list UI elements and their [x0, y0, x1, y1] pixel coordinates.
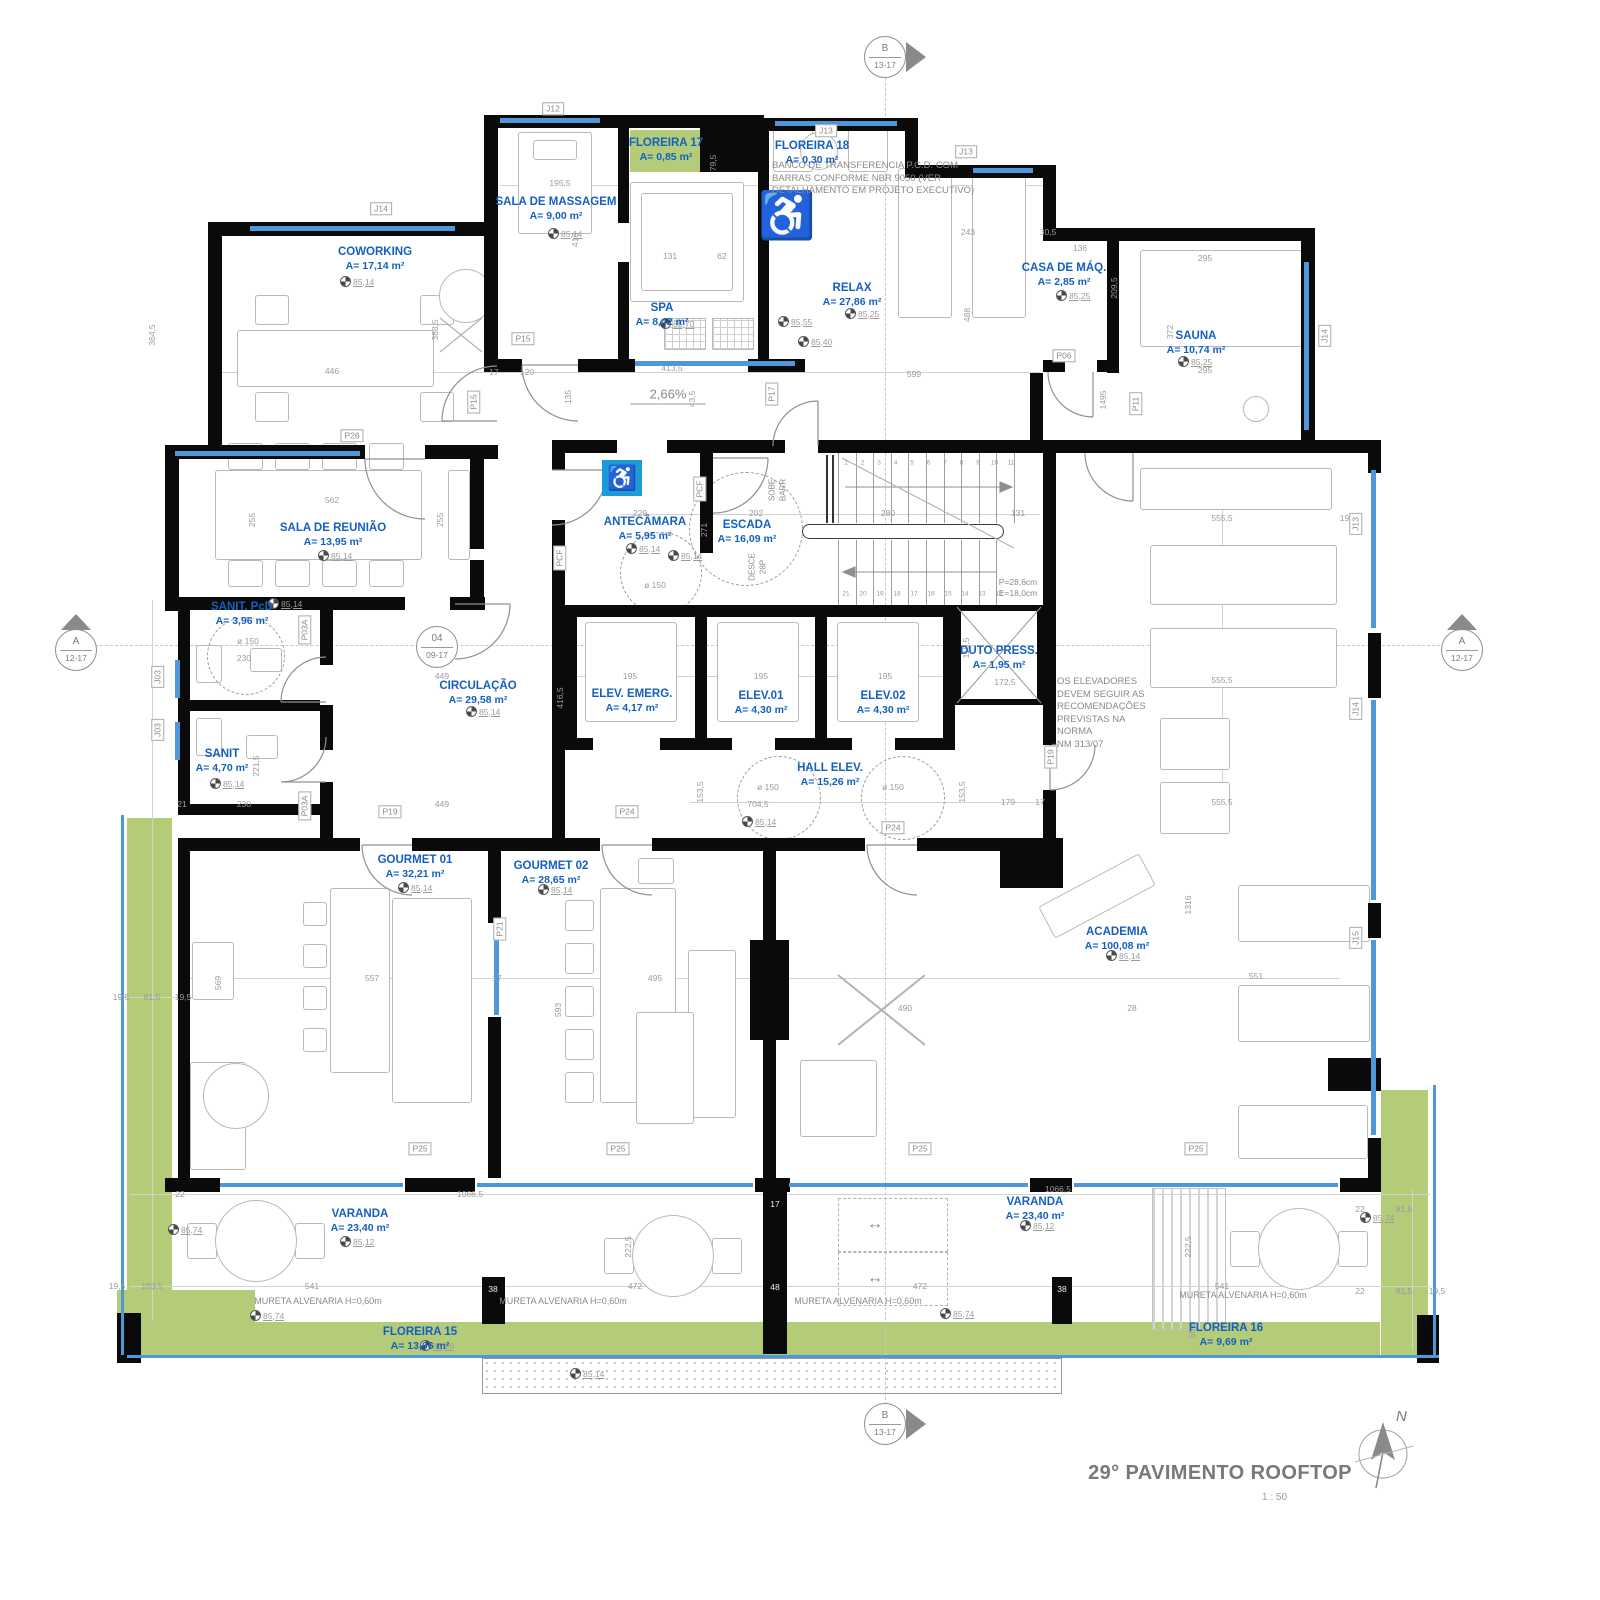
- dimension-label: 103,5: [141, 1281, 162, 1291]
- dimension-label: 22: [1355, 1286, 1364, 1296]
- dimension-label: 1066,5: [1045, 1184, 1071, 1194]
- dimension-label: 1066,5: [457, 1189, 483, 1199]
- opening-tag-p17: P17: [765, 382, 778, 405]
- dimension-label: 19,5: [1429, 1286, 1446, 1296]
- elevation-benchmark: 85,40: [798, 336, 832, 347]
- room-label-floreira-15: FLOREIRA 15A= 13,66 m²: [383, 1326, 457, 1352]
- accessible-icon: ♿: [602, 460, 642, 496]
- dimension-label: 413,5: [661, 363, 682, 373]
- opening-tag-j13: J13: [815, 124, 837, 137]
- dimension-label: 388,5: [430, 319, 440, 340]
- opening-tag-p15: P15: [511, 332, 534, 345]
- dimension-label: 1495: [1098, 391, 1108, 410]
- dimension-label: 222,5: [623, 1236, 633, 1257]
- opening-tag-j12: J12: [542, 102, 564, 115]
- elevation-benchmark: 85,14: [742, 816, 776, 827]
- room-label-floreira-16: FLOREIRA 16A= 9,69 m²: [1189, 1322, 1263, 1348]
- annotation: OS ELEVADORES DEVEM SEGUIR AS RECOMENDAÇ…: [1057, 676, 1146, 751]
- dimension-label: ø 150: [644, 580, 666, 590]
- dimension-label: 195,5: [549, 178, 570, 188]
- room-label-circula-o: CIRCULAÇÃOA= 29,58 m²: [439, 680, 516, 706]
- dimension-label: 541: [305, 1281, 319, 1291]
- dimension-label: 243: [961, 227, 975, 237]
- dimension-label: 551: [1249, 971, 1263, 981]
- annotation: P=28,6cm E=18,0cm: [999, 577, 1038, 599]
- dimension-label: 495: [648, 973, 662, 983]
- room-label-varanda: VARANDAA= 23,40 m²: [331, 1208, 390, 1234]
- room-label-floreira-18: FLOREIRA 18A= 0,30 m²: [775, 140, 849, 166]
- dimension-label: 38: [1057, 1284, 1066, 1294]
- room-label-duto-press-: DUTO PRESS.A= 1,95 m²: [960, 645, 1038, 671]
- opening-tag-j13: J13: [1349, 513, 1362, 535]
- grid-marker-bottom: B13-17: [864, 1403, 906, 1445]
- dimension-label: ø 150: [882, 782, 904, 792]
- dimension-label: 446: [325, 366, 339, 376]
- dimension-label: 43,5: [687, 391, 697, 408]
- opening-tag-p19: P19: [378, 805, 401, 818]
- dimension-label: 17: [1035, 797, 1044, 807]
- opening-tag-p25: P25: [908, 1142, 931, 1155]
- dimension-label: 562: [325, 495, 339, 505]
- room-label-coworking: COWORKINGA= 17,14 m²: [338, 246, 412, 272]
- dimension-label: 48: [770, 1282, 779, 1292]
- opening-tag-p03a: P03A: [298, 616, 311, 645]
- dimension-label: ø 150: [757, 782, 779, 792]
- elevation-benchmark: 85,14: [340, 276, 374, 287]
- dimension-label: 271: [699, 523, 709, 537]
- dimension-label: 22: [1355, 1204, 1364, 1214]
- room-label-elev-emerg-: ELEV. EMERG.A= 4,17 m²: [592, 688, 673, 714]
- room-label-hall-elev-: HALL ELEV.A= 15,26 m²: [797, 762, 863, 788]
- opening-tag-p24: P24: [881, 821, 904, 834]
- room-label-sala-de-massagem: SALA DE MASSAGEMA= 9,00 m²: [496, 196, 617, 222]
- room-label-gourmet-02: GOURMET 02A= 28,65 m²: [514, 860, 589, 886]
- annotation: 2,66%: [650, 385, 687, 402]
- opening-tag-j14: J14: [1349, 698, 1362, 720]
- opening-tag-p11: P11: [1129, 393, 1142, 416]
- opening-tag-p26: P26: [340, 429, 363, 442]
- opening-tag-j15: J15: [1349, 927, 1362, 949]
- elevation-benchmark: 85,14: [570, 1368, 604, 1379]
- opening-tag-p25: P25: [1184, 1142, 1207, 1155]
- dimension-label: 541: [1215, 1281, 1229, 1291]
- sheet-title: 29° PAVIMENTO ROOFTOP: [1080, 1462, 1360, 1485]
- elevation-benchmark: 85,25: [845, 308, 879, 319]
- room-label-spa: SPAA= 8,42 m²: [636, 302, 689, 328]
- dimension-label: 17: [770, 1199, 779, 1209]
- dimension-label: 19,5: [175, 992, 192, 1002]
- dimension-label: 295: [1198, 253, 1212, 263]
- room-label-antec-mara: ANTECÂMARAA= 5,95 m²: [604, 516, 686, 542]
- elevation-benchmark: 85,74: [940, 1308, 974, 1319]
- dimension-label: 569: [213, 976, 223, 990]
- grid-marker-left: A12-17: [55, 629, 97, 671]
- dimension-label: 295: [1198, 365, 1212, 375]
- elevation-benchmark: 85,25: [1056, 290, 1090, 301]
- room-label-gourmet-01: GOURMET 01A= 32,21 m²: [378, 854, 453, 880]
- dimension-label: 131: [663, 251, 677, 261]
- dimension-label: 79,5: [708, 155, 718, 172]
- annotation: ↔: [867, 1213, 883, 1234]
- dimension-label: 593: [553, 1003, 563, 1017]
- dimension-label: 172,5: [994, 677, 1015, 687]
- elevation-benchmark: 85,74: [1360, 1212, 1394, 1223]
- elevation-benchmark: 85,55: [778, 316, 812, 327]
- dimension-label: 1316: [1183, 896, 1193, 915]
- opening-tag-pcf: PCF: [693, 477, 706, 502]
- dimension-label: 179: [1001, 797, 1015, 807]
- opening-tag-p21: P21: [493, 917, 506, 940]
- dimension-label: ø 150: [237, 636, 259, 646]
- dimension-label: 19,5: [109, 1281, 126, 1291]
- opening-tag-j03: J03: [151, 719, 164, 741]
- dimension-label: 19,5: [113, 992, 130, 1002]
- dimension-label: 555,5: [1211, 513, 1232, 523]
- dimension-label: 449: [435, 799, 449, 809]
- north-label: N: [1396, 1408, 1407, 1425]
- dimension-label: 62: [717, 251, 726, 261]
- dimension-label: 555,5: [1211, 797, 1232, 807]
- annotation: MURETA ALVENARIA H=0,60m: [499, 1296, 626, 1308]
- dimension-label: 555,5: [1211, 675, 1232, 685]
- dimension-label: 280: [881, 508, 895, 518]
- dimension-label: 28: [1127, 1003, 1136, 1013]
- detail-marker-04: 0409-17: [416, 626, 458, 668]
- dimension-label: 221,5: [251, 755, 261, 776]
- opening-tag-j14: J14: [1318, 325, 1331, 347]
- opening-tag-j14: J14: [370, 202, 392, 215]
- dimension-label: 222,5: [1183, 1236, 1193, 1257]
- room-label-relax: RELAXA= 27,86 m²: [823, 282, 882, 308]
- room-label-academia: ACADEMIAA= 100,08 m²: [1085, 926, 1150, 952]
- room-label-escada: ESCADAA= 16,09 m²: [718, 519, 777, 545]
- elevation-benchmark: 85,14: [398, 882, 432, 893]
- opening-tag-p03a: P03A: [298, 792, 311, 821]
- room-label-elev-01: ELEV.01A= 4,30 m²: [735, 690, 788, 716]
- dimension-label: 153,5: [695, 781, 705, 802]
- elevation-benchmark: 85,14: [268, 598, 302, 609]
- dimension-label: 135: [563, 390, 573, 404]
- dimension-label: 136: [1073, 243, 1087, 253]
- annotation: DESCE 28P: [747, 553, 768, 581]
- opening-tag-j03: J03: [151, 666, 164, 688]
- opening-tag-p25: P25: [408, 1142, 431, 1155]
- opening-tag-p25: P25: [606, 1142, 629, 1155]
- room-label-varanda: VARANDAA= 23,40 m²: [1006, 1196, 1065, 1222]
- room-label-casa-de-m-q-: CASA DE MÁQ.A= 2,85 m²: [1022, 262, 1107, 288]
- elevation-benchmark: 85,74: [250, 1310, 284, 1321]
- elevation-benchmark: 85,12: [340, 1236, 374, 1247]
- elevation-benchmark: 85,14: [318, 550, 352, 561]
- dimension-label: 209,5: [1109, 277, 1119, 298]
- opening-tag-j13: J13: [955, 145, 977, 158]
- dimension-label: 30,5: [1040, 227, 1057, 237]
- dimension-label: 81,5: [144, 992, 161, 1002]
- dimension-label: 195: [623, 671, 637, 681]
- opening-tag-p06: P06: [1052, 349, 1075, 362]
- opening-tag-p15: P15: [467, 390, 480, 413]
- dimension-label: 230: [237, 799, 251, 809]
- dimension-label: 255: [247, 513, 257, 527]
- dimension-label: 704,5: [747, 799, 768, 809]
- dimension-label: 364,5: [147, 324, 157, 345]
- dimension-label: 21: [177, 799, 186, 809]
- grid-marker-top: B13-17: [864, 36, 906, 78]
- annotation: ↔: [867, 1267, 883, 1288]
- dimension-label: 81,5: [1396, 1204, 1413, 1214]
- elevation-benchmark: 85,14: [626, 543, 660, 554]
- dimension-label: 557: [365, 973, 379, 983]
- dimension-label: 195: [878, 671, 892, 681]
- dimension-label: 488: [962, 308, 972, 322]
- elevation-benchmark: 85,14: [668, 550, 702, 561]
- dimension-label: 22: [175, 1189, 184, 1199]
- elevation-benchmark: 85,74: [168, 1224, 202, 1235]
- annotation: MURETA ALVENARIA H=0,60m: [794, 1296, 921, 1308]
- room-label-sanit: SANITA= 4,70 m²: [196, 748, 249, 774]
- sheet-scale: 1 : 50: [1262, 1492, 1287, 1503]
- dimension-label: 202: [749, 508, 763, 518]
- room-label-sauna: SAUNAA= 10,74 m²: [1167, 330, 1226, 356]
- dimension-label: 153,5: [957, 781, 967, 802]
- dimension-label: 472: [913, 1281, 927, 1291]
- room-label-floreira-17: FLOREIRA 17A= 0,85 m²: [629, 137, 703, 163]
- room-label-sala-de-reuni-o: SALA DE REUNIÃOA= 13,95 m²: [280, 522, 386, 548]
- dimension-label: 472: [628, 1281, 642, 1291]
- grid-marker-right: A12-17: [1441, 629, 1483, 671]
- floor-plan: 123456789101121201918171615141312: [0, 0, 1600, 1600]
- elevation-benchmark: 85,14: [210, 778, 244, 789]
- dimension-label: 413: [570, 233, 580, 247]
- dimension-label: 230: [237, 653, 251, 663]
- opening-tag-p19: P19: [1044, 745, 1057, 768]
- dimension-label: 81,5: [1396, 1286, 1413, 1296]
- dimension-label: 416,5: [555, 687, 565, 708]
- dimension-label: 599: [907, 369, 921, 379]
- dimension-label: 131: [1011, 508, 1025, 518]
- room-label-sanit-pcd: SANIT. PcDA= 3,96 m²: [211, 601, 273, 627]
- annotation: MURETA ALVENARIA H=0,60m: [1179, 1290, 1306, 1302]
- opening-tag-pcf: PCF: [553, 546, 566, 571]
- dimension-label: 120: [520, 367, 534, 377]
- dimension-label: 255: [435, 513, 445, 527]
- dimension-label: 38: [488, 1284, 497, 1294]
- room-label-elev-02: ELEV.02A= 4,30 m²: [857, 690, 910, 716]
- dimension-label: 195: [754, 671, 768, 681]
- dimension-label: 17: [492, 973, 501, 983]
- elevation-benchmark: 85,14: [466, 706, 500, 717]
- opening-tag-p24: P24: [615, 805, 638, 818]
- annotation: SOBE BARR: [767, 479, 788, 501]
- annotation: MURETA ALVENARIA H=0,60m: [254, 1296, 381, 1308]
- dimension-label: 17: [489, 367, 498, 377]
- dimension-label: 490: [898, 1003, 912, 1013]
